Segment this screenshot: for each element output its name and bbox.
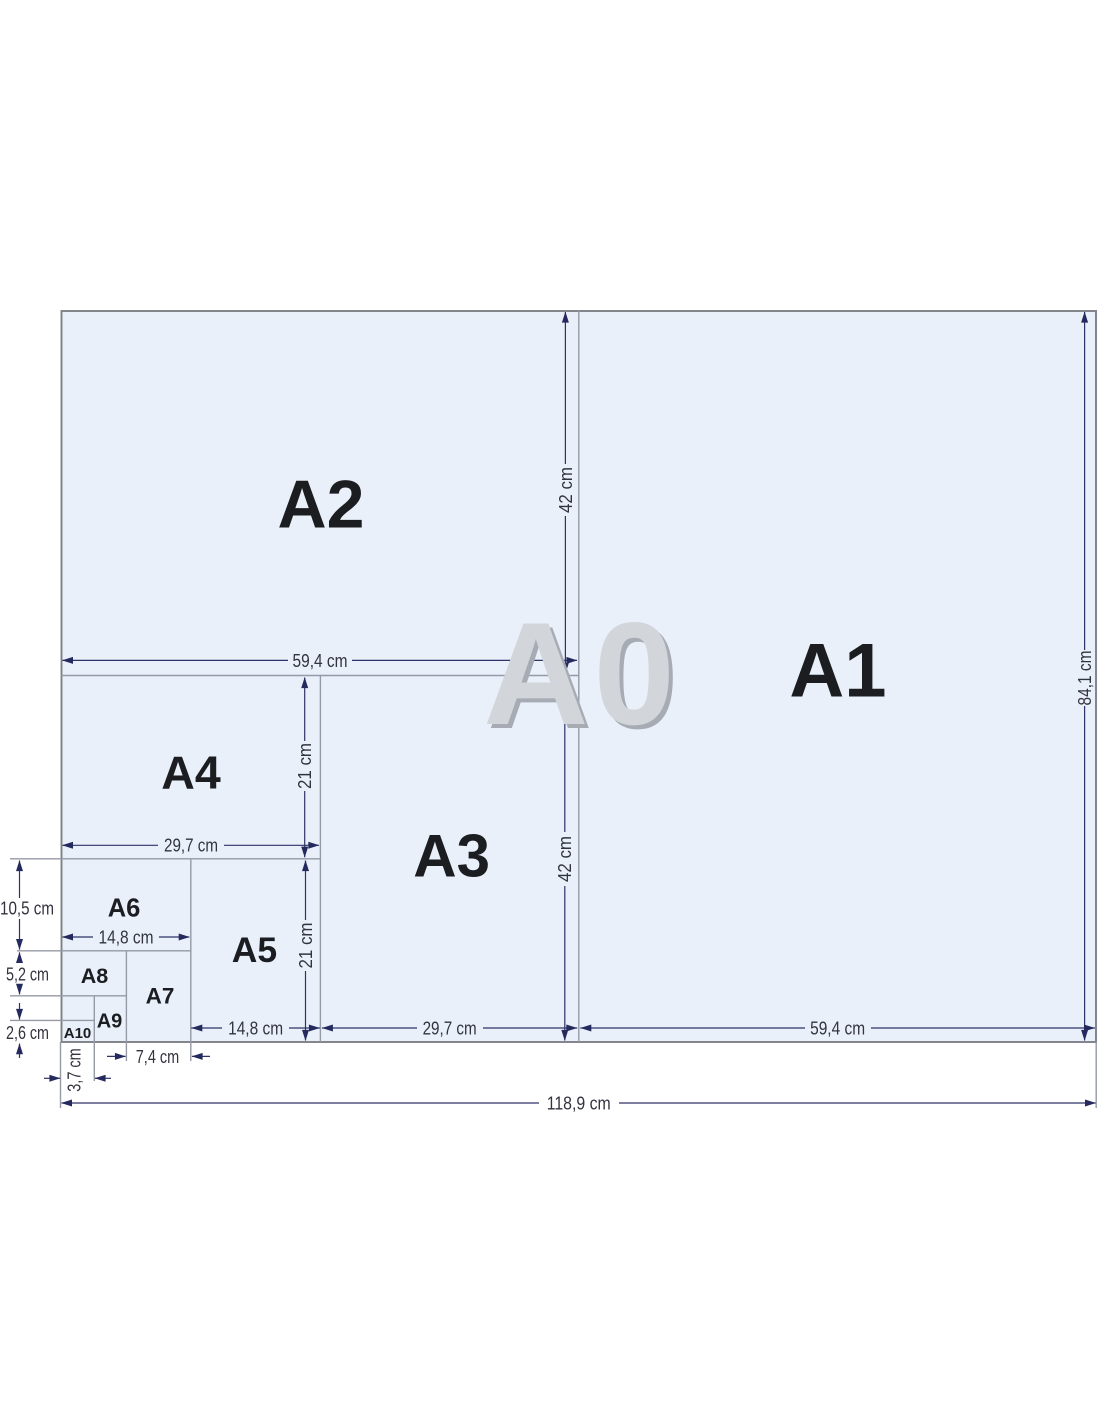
svg-text:118,9 cm: 118,9 cm [547, 1093, 611, 1113]
svg-text:29,7 cm: 29,7 cm [423, 1018, 477, 1038]
svg-text:A1: A1 [789, 629, 886, 714]
svg-text:29,7 cm: 29,7 cm [164, 836, 218, 856]
svg-text:A7: A7 [146, 984, 175, 1009]
svg-text:84,1 cm: 84,1 cm [1075, 651, 1095, 706]
svg-text:42 cm: 42 cm [555, 836, 575, 882]
svg-text:59,4 cm: 59,4 cm [293, 651, 348, 671]
svg-text:A10: A10 [64, 1025, 92, 1042]
svg-text:A4: A4 [161, 746, 221, 798]
svg-text:A0: A0 [483, 592, 680, 755]
svg-text:A8: A8 [81, 964, 109, 988]
svg-text:3,7 cm: 3,7 cm [64, 1048, 84, 1092]
svg-text:42 cm: 42 cm [556, 467, 576, 513]
svg-text:21 cm: 21 cm [296, 923, 316, 969]
svg-text:A6: A6 [108, 894, 141, 922]
svg-text:14,8 cm: 14,8 cm [228, 1018, 283, 1038]
svg-text:10,5 cm: 10,5 cm [0, 899, 54, 919]
svg-text:2,6 cm: 2,6 cm [6, 1023, 49, 1043]
svg-text:A5: A5 [232, 930, 277, 970]
svg-text:21 cm: 21 cm [295, 743, 315, 789]
svg-text:A2: A2 [278, 466, 365, 542]
svg-text:59,4 cm: 59,4 cm [810, 1018, 865, 1038]
svg-text:A9: A9 [97, 1010, 123, 1032]
svg-text:5,2 cm: 5,2 cm [6, 964, 49, 984]
svg-text:7,4 cm: 7,4 cm [136, 1047, 180, 1067]
svg-text:A3: A3 [413, 822, 490, 889]
svg-text:14,8 cm: 14,8 cm [99, 927, 154, 947]
